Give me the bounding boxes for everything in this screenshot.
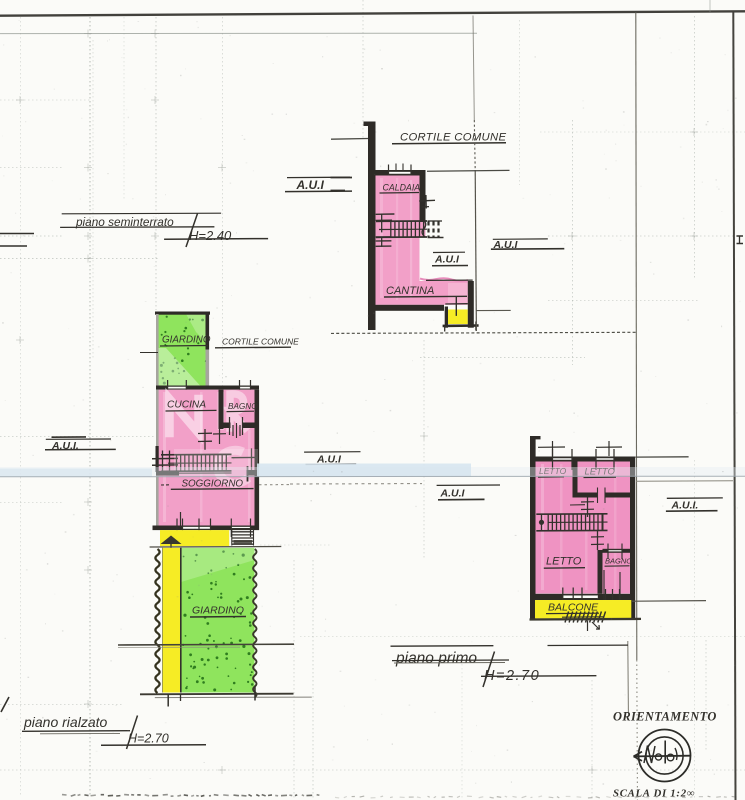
svg-text:GIARDINO: GIARDINO [192,605,244,617]
svg-text:CORTILE COMUNE: CORTILE COMUNE [222,337,299,347]
svg-text:A.U.I: A.U.I [440,488,466,500]
svg-text:piano rialzato: piano rialzato [23,714,107,730]
svg-text:BAGNO: BAGNO [605,557,632,566]
svg-text:ORIENTAMENTO: ORIENTAMENTO [613,710,717,724]
svg-text:CUCINA: CUCINA [167,400,206,411]
svg-text:A.U.I.: A.U.I. [671,500,699,512]
svg-text:BALCONE: BALCONE [548,602,599,614]
svg-text:piano primo: piano primo [395,650,477,667]
svg-text:CALDAIA: CALDAIA [383,183,421,193]
svg-text:GIARDINO: GIARDINO [162,335,211,346]
svg-text:H=2.40: H=2.40 [189,228,232,243]
svg-text:BAGNO: BAGNO [228,402,258,411]
svg-text:CANTINA: CANTINA [386,285,434,297]
svg-text:LETTO: LETTO [546,556,582,568]
svg-text:A.U.I: A.U.I [434,254,460,266]
svg-text:SCALA DI 1:2∞: SCALA DI 1:2∞ [613,788,695,800]
svg-text:SOGGIORNO: SOGGIORNO [182,479,244,490]
svg-text:A.U.I: A.U.I [296,178,325,192]
svg-text:CORTILE COMUNE: CORTILE COMUNE [400,132,506,144]
svg-text:H=2.70: H=2.70 [128,732,169,746]
